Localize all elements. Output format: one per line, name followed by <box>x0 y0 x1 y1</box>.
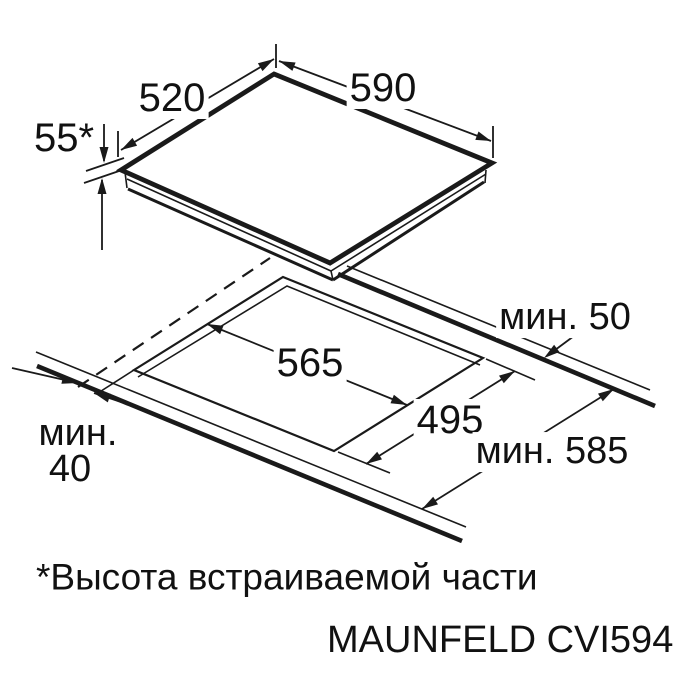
cutout-right-extension-line <box>486 359 535 380</box>
dim-cutout-width-label: 565 <box>274 342 347 384</box>
dim-clearance-rear-label: мин. 50 <box>496 298 634 338</box>
dim-worktop-min-depth-label: мин. 585 <box>473 432 632 472</box>
model-name: MAUNFELD CVI594 <box>327 621 673 661</box>
dim-hob-depth-label: 520 <box>136 77 209 119</box>
footnote-built-in-height: *Высота встраиваемой части <box>36 559 538 598</box>
hob-installation-diagram: 520 590 55* 565 495 мин. 50 мин. 585 мин… <box>0 0 700 700</box>
dim-built-in-height-label: 55* <box>31 117 97 159</box>
dim-hob-width-label: 590 <box>347 67 420 109</box>
cutout-bottom-extension-line <box>338 452 390 473</box>
dim-clearance-front-value-label: 40 <box>46 450 94 490</box>
